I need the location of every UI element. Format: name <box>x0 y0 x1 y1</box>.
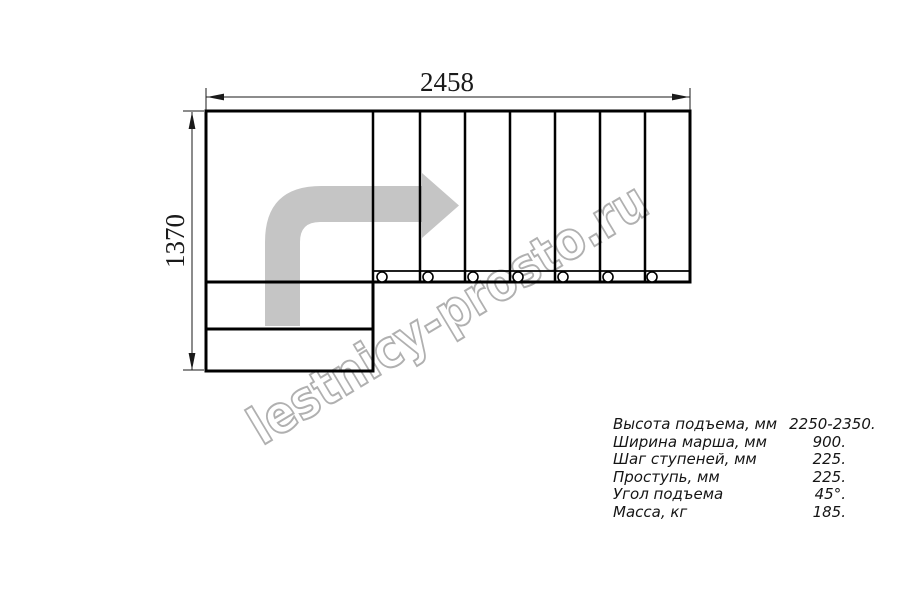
stair-drawing-page: lestnicy-prosto.ru <box>0 0 900 600</box>
baluster-circle <box>513 272 523 282</box>
spec-table: Высота подъема, мм 2250-2350. Ширина мар… <box>613 416 846 522</box>
dim-arrow-down-icon <box>189 353 196 370</box>
spec-row: Шаг ступеней, мм 225. <box>613 451 846 469</box>
dim-arrow-right-icon <box>672 94 689 101</box>
top-dimension-value: 2458 <box>420 67 474 97</box>
spec-label: Угол подъема <box>613 486 723 504</box>
dim-arrow-left-icon <box>207 94 224 101</box>
baluster-circle <box>423 272 433 282</box>
spec-value: 900. <box>813 434 846 452</box>
spec-label: Ширина марша, мм <box>613 434 767 452</box>
spec-value: 2250-2350. <box>789 416 876 434</box>
spec-row: Ширина марша, мм 900. <box>613 434 846 452</box>
spec-label: Шаг ступеней, мм <box>613 451 757 469</box>
spec-row: Высота подъема, мм 2250-2350. <box>613 416 846 434</box>
baluster-circle <box>647 272 657 282</box>
spec-label: Масса, кг <box>613 504 687 522</box>
spec-label: Высота подъема, мм <box>613 416 777 434</box>
baluster-circle <box>603 272 613 282</box>
spec-row: Проступь, мм 225. <box>613 469 846 487</box>
spec-value: 225. <box>813 451 846 469</box>
baluster-circle <box>468 272 478 282</box>
spec-row: Масса, кг 185. <box>613 504 846 522</box>
spec-label: Проступь, мм <box>613 469 720 487</box>
baluster-circle <box>558 272 568 282</box>
spec-row: Угол подъема 45°. <box>613 486 846 504</box>
left-dimension-value: 1370 <box>160 214 190 268</box>
baluster-circle <box>377 272 387 282</box>
spec-value: 45°. <box>815 486 846 504</box>
dim-arrow-up-icon <box>189 112 196 129</box>
spec-value: 225. <box>813 469 846 487</box>
spec-value: 185. <box>813 504 846 522</box>
